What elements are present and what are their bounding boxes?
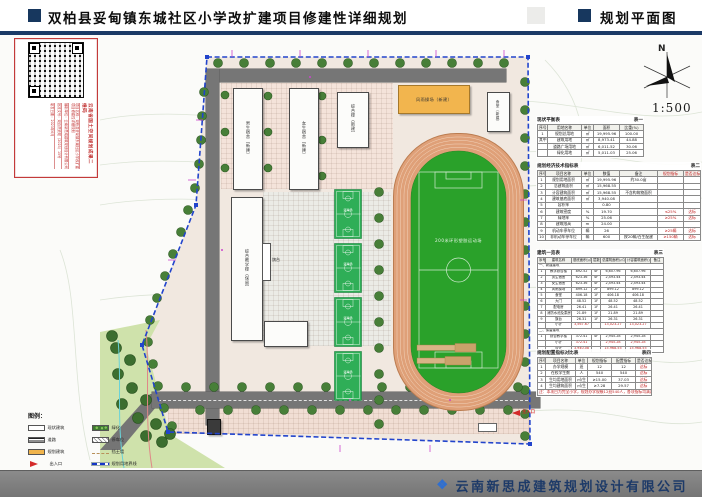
building-boys-dorm: 男生宿舍（新建） [233, 88, 263, 190]
planned-building-swatch [28, 449, 45, 455]
stamp-line: 制发日期：2023年6月 [48, 103, 55, 169]
annex-building [264, 321, 308, 347]
stamp-text: 云南省国土空间规划成果二维码 项目名称：双柏县妥甸镇东城社区小学改扩建项目修建性… [19, 103, 93, 169]
legend-label: 出入口 [50, 461, 63, 467]
main-entrance-arrow [512, 410, 520, 416]
legend-label: 规划建筑 [48, 449, 65, 455]
boundary-swatch [92, 463, 109, 465]
scale-label: 1:500 [652, 101, 692, 115]
header-divider [0, 31, 702, 35]
legend-label: 道路 [48, 437, 56, 443]
title-bullet-icon [28, 9, 41, 22]
court-label: 篮球场 [343, 261, 352, 266]
view-bullet-icon [578, 9, 591, 22]
table-row: 绿化用地㎡5,011.0325.06 [538, 150, 644, 156]
basketball-court: 篮球场 [334, 351, 362, 401]
view-label: 规划平面图 [600, 7, 678, 27]
page-title: 双柏县妥甸镇东城社区小学改扩建项目修建性详细规划 [48, 7, 408, 27]
building-label: 食堂（新建） [496, 100, 501, 123]
table-title: 规划配置指标对比表 [537, 350, 578, 356]
building-label: 风雨操场（新建） [416, 97, 452, 103]
configuration-comparison-table: 规划配置指标对比表表四 序号项目名称单位规划指标配置指标是否达标1办学规模班12… [536, 349, 652, 397]
running-track: 200米环形塑胶运动场 [392, 132, 525, 412]
legend-item: 现状建筑 [28, 422, 92, 434]
stamp-line: 项目名称：双柏县妥甸镇东城社区小学改扩建项目修建性详细规划 [69, 103, 80, 169]
legend-item: 停车位 [92, 434, 166, 446]
flag-label: 旗台 [272, 257, 280, 263]
approval-stamp: 云南省国土空间规划成果二维码 项目名称：双柏县妥甸镇东城社区小学改扩建项目修建性… [14, 38, 98, 178]
table-title: 规划经济技术指标表 [537, 163, 578, 169]
table-tag: 表二 [691, 163, 700, 169]
building-label: 综合楼（新建） [350, 104, 356, 135]
basketball-court: 篮球场 [334, 243, 362, 293]
table-row: 注：本项目为完全小学，规划办学规模12班540人，各项指标均满足办学标准要求。 [538, 389, 652, 395]
table-tag: 表三 [654, 250, 663, 256]
company-text: 云南新思成建筑规划设计有限公司 [455, 476, 688, 495]
gate-building [207, 419, 221, 435]
court-label: 篮球场 [343, 207, 352, 212]
dimension-callout [478, 423, 497, 432]
legend-label: 现状建筑 [48, 425, 65, 431]
basketball-court: 篮球场 [334, 297, 362, 347]
building-teaching-retained: 综合教学楼（保留） [231, 197, 263, 341]
retaining-wall-swatch [92, 453, 109, 454]
qr-finder-icon [29, 86, 40, 97]
court-label: 篮球场 [343, 315, 352, 320]
greenery-swatch [92, 425, 109, 431]
building-complex: 综合楼（新建） [337, 92, 369, 148]
existing-building-swatch [28, 425, 45, 431]
building-gymnasium: 风雨操场（新建） [398, 85, 470, 114]
company-logo-icon [436, 478, 450, 493]
table-tag: 表一 [634, 117, 643, 123]
stamp-line: 编制单位：云南新思成建筑规划设计有限公司 [62, 103, 69, 169]
main-entrance-label: 主入口 [522, 409, 535, 415]
ghost-square [527, 7, 545, 24]
legend-label: 规划用地界线 [112, 461, 137, 467]
north-compass-icon [642, 52, 692, 100]
flag-platform [262, 243, 271, 281]
company-name: 云南新思成建筑规划设计有限公司 [436, 476, 688, 495]
building-canteen: 食堂（新建） [487, 92, 510, 132]
drawing-sheet: 200米环形塑胶运动场 篮球场 篮球场 篮球场 篮球场 男生宿舍（新建） 女生宿… [0, 0, 702, 497]
entrance-arrow-swatch [30, 461, 38, 467]
stamp-heading: 云南省国土空间规划成果二维码 [80, 103, 93, 169]
field-label: 200米环形塑胶运动场 [435, 237, 482, 244]
qr-finder-icon [72, 43, 83, 54]
building-label: 女生宿舍（新建） [301, 121, 307, 157]
legend-label: 停车位 [112, 437, 125, 443]
legend-item: 出入口 [28, 458, 92, 470]
economic-indicators-table: 规划经济技术指标表表二 序号项目名称单位数值备注规划指标是否达标1规划用地面积㎡… [536, 162, 701, 242]
road-swatch [28, 437, 45, 443]
building-label: 综合教学楼（保留） [244, 249, 250, 289]
title-bar: 双柏县妥甸镇东城社区小学改扩建项目修建性详细规划 规划平面图 [0, 0, 702, 31]
table-tag: 表四 [642, 350, 651, 356]
table-row: 10非机动车停车位辆600按20辆/百生配建≥150辆达标 [538, 234, 701, 240]
legend: 图例： 现状建筑 绿化 道路 停车位 规划建筑 挡土墙 出入口 规划用地界线 [28, 411, 168, 470]
legend-item: 挡土墙 [92, 446, 166, 458]
building-girls-dorm: 女生宿舍（新建） [289, 88, 319, 190]
building-label: 男生宿舍（新建） [245, 121, 251, 157]
legend-title: 图例： [28, 411, 168, 420]
parking-swatch [92, 437, 109, 443]
basketball-court: 篮球场 [334, 189, 362, 239]
legend-item: 规划建筑 [28, 446, 92, 458]
legend-label: 挡土墙 [112, 449, 125, 455]
legend-label: 绿化 [112, 425, 120, 431]
court-label: 篮球场 [343, 369, 352, 374]
stamp-line: 批准文号：双自然资规〔2023〕15号 [55, 103, 62, 169]
legend-item: 规划用地界线 [92, 458, 166, 470]
legend-item: 绿化 [92, 422, 166, 434]
legend-item: 道路 [28, 434, 92, 446]
building-list-table: 建筑一览表表三 序号建筑名称基底面积(㎡)层数总建筑面积(㎡)计容建筑面积(㎡)… [536, 249, 664, 354]
qr-code [28, 42, 84, 98]
table-title: 建筑一览表 [537, 250, 560, 256]
footer-bar: 云南新思成建筑规划设计有限公司 [0, 470, 702, 497]
qr-finder-icon [29, 43, 40, 54]
land-balance-table: 现状平衡表表一 序号用地名称单位面积比重(%)1规划总用地㎡19,995.961… [536, 116, 644, 158]
table-title: 现状平衡表 [537, 117, 560, 123]
